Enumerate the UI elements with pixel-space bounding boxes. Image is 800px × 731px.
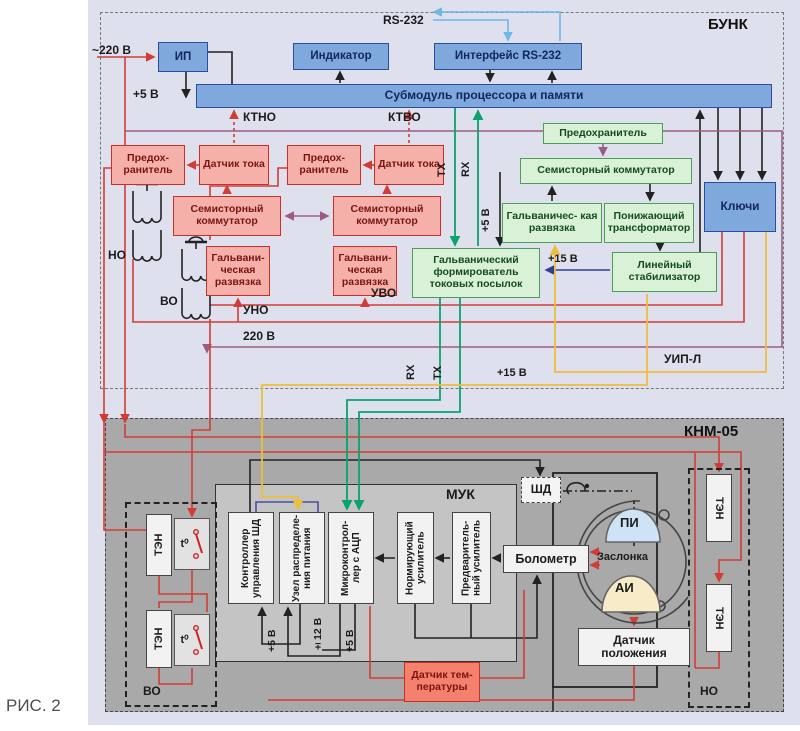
rs232-interface-label: Интерфейс RS-232 — [455, 50, 561, 63]
current-sensor-2-label: Датчик тока — [378, 159, 440, 171]
power-supply-box: ИП — [158, 42, 208, 72]
triac-switch-box-2: Семисторный коммутатор — [333, 196, 441, 236]
fuse-box-green: Предохранитель — [543, 123, 663, 144]
thermostat-1-label: t⁰ — [180, 538, 188, 550]
stepper-controller-box: Контроллер управления ШД — [228, 512, 274, 604]
rs232-interface-box: Интерфейс RS-232 — [434, 43, 582, 70]
heater-1-label: ТЭН — [153, 534, 165, 557]
plus5-b-label: +5 В — [344, 608, 356, 652]
temperature-sensor-box: Датчик тем- пературы — [404, 662, 480, 702]
ai-label: АИ — [615, 580, 634, 595]
rx-bottom-label: RX — [405, 346, 417, 380]
plus15-blue-label: +15 В — [548, 253, 578, 265]
thermal-switch-icon — [190, 526, 204, 562]
triac-switch-1-label: Семисторный коммутатор — [174, 204, 280, 228]
tx-top-label: TX — [436, 143, 448, 177]
vo-enclosure-label: ВО — [143, 684, 161, 698]
normalizing-amplifier-label: Нормирующий усилитель — [404, 513, 426, 603]
fuse-1-label: Предох- ранитель — [112, 153, 184, 177]
galvanic-isolation-box-1: Гальвани- ческая развязка — [206, 246, 270, 296]
thermostat-box-1: t⁰ — [174, 518, 210, 570]
vo-transformer-label: ВО — [160, 294, 178, 308]
plus15-yellow-label: +15 В — [497, 367, 527, 379]
figure-2-schematic: ИП Индикатор Интерфейс RS-232 Субмодуль … — [0, 0, 800, 731]
fuse-box-1: Предох- ранитель — [111, 145, 185, 185]
stepper-motor-box: ШД — [521, 477, 561, 503]
muk-title: МУК — [446, 486, 475, 502]
zaslonka-label: Заслонка — [597, 551, 648, 563]
ktvo-label: КТВО — [388, 110, 421, 124]
keys-box: Ключи — [704, 182, 776, 232]
plus5-top-label: +5 В — [133, 87, 159, 101]
fuse-green-label: Предохранитель — [559, 128, 647, 140]
current-sensor-box-1: Датчик тока — [199, 145, 269, 185]
figure-caption: РИС. 2 — [6, 696, 61, 716]
microcontroller-adc-box: Микроконтрол- лер с АЦП — [328, 512, 374, 604]
temperature-sensor-label: Датчик тем- пературы — [405, 670, 479, 694]
pi-label: ПИ — [620, 515, 639, 530]
heater-3-label: ТЭН — [713, 497, 725, 520]
knm-title: КНМ-05 — [684, 423, 738, 440]
triac-switch-box-1: Семисторный коммутатор — [173, 196, 281, 236]
indicator-label: Индикатор — [310, 50, 371, 63]
preamplifier-label: Предваритель- ный усилитель — [460, 513, 482, 603]
220v-label: 220 В — [243, 329, 275, 343]
step-down-transformer-box: Понижающий трансформатор — [604, 203, 694, 243]
current-sensor-1-label: Датчик тока — [203, 159, 265, 171]
rs232-label: RS-232 — [383, 13, 424, 27]
processor-submodule-label: Субмодуль процессора и памяти — [385, 89, 584, 102]
galvanic-isolation-box-green: Гальваничес- кая развязка — [502, 203, 602, 243]
bunk-title: БУНК — [708, 16, 748, 33]
rx-top-label: RX — [460, 143, 472, 177]
normalizing-amplifier-box: Нормирующий усилитель — [397, 512, 434, 604]
heater-box-4: ТЭН — [706, 584, 732, 652]
preamplifier-box: Предваритель- ный усилитель — [452, 512, 491, 604]
triac-switch-box-green: Семисторный коммутатор — [520, 158, 692, 184]
plus5-a-label: +5 В — [266, 608, 278, 652]
heater-box-1: ТЭН — [146, 514, 172, 576]
triac-switch-2-label: Семисторный коммутатор — [334, 204, 440, 228]
heater-4-label: ТЭН — [713, 607, 725, 630]
stepper-motor-label: ШД — [531, 483, 552, 496]
thermal-switch-icon — [190, 622, 204, 658]
position-sensor-box: Датчик положения — [578, 628, 690, 666]
thermostat-box-2: t⁰ — [174, 614, 210, 666]
stepper-controller-label: Контроллер управления ШД — [240, 513, 262, 603]
no-transformer-label: НО — [108, 248, 126, 262]
current-former-box: Гальванический формирователь токовых пос… — [412, 248, 540, 298]
fuse-box-2: Предох- ранитель — [287, 145, 361, 185]
current-sensor-box-2: Датчик тока — [374, 145, 444, 185]
bolometer-box: Болометр — [503, 545, 589, 573]
tx-bottom-label: TX — [432, 346, 444, 380]
heater-box-2: ТЭН — [146, 610, 172, 668]
position-sensor-label: Датчик положения — [579, 634, 689, 661]
step-down-transformer-label: Понижающий трансформатор — [605, 211, 693, 235]
bolometer-label: Болометр — [515, 552, 576, 566]
no-enclosure-label: НО — [700, 684, 718, 698]
uipl-label: УИП-Л — [664, 352, 701, 366]
ktno-label: КТНО — [243, 110, 276, 124]
triac-switch-green-label: Семисторный коммутатор — [537, 165, 674, 177]
indicator-box: Индикатор — [293, 43, 389, 70]
microcontroller-adc-label: Микроконтрол- лер с АЦП — [340, 513, 362, 603]
uvo-label: УВО — [371, 286, 396, 300]
processor-submodule-box: Субмодуль процессора и памяти — [196, 84, 772, 108]
power-in-label: ~220 В — [92, 43, 131, 57]
heater-box-3: ТЭН — [706, 474, 732, 542]
current-former-label: Гальванический формирователь токовых пос… — [413, 255, 539, 290]
uno-label: УНО — [243, 303, 268, 317]
power-supply-label: ИП — [175, 51, 192, 64]
power-distribution-label: Узел распределе- ния питания — [291, 513, 313, 603]
pm12-label: ±12 В — [312, 606, 324, 652]
power-distribution-box: Узел распределе- ния питания — [279, 512, 325, 604]
galvanic-isolation-1-label: Гальвани- ческая развязка — [207, 253, 269, 288]
galvanic-isolation-2-label: Гальвани- ческая развязка — [334, 253, 396, 288]
galvanic-isolation-green-label: Гальваничес- кая развязка — [503, 211, 601, 235]
linear-stabilizer-box: Линейный стабилизатор — [612, 252, 717, 292]
heater-2-label: ТЭН — [153, 628, 165, 651]
plus5-vertical-label: +5 В — [480, 190, 492, 232]
thermostat-2-label: t⁰ — [180, 634, 188, 646]
keys-label: Ключи — [720, 200, 759, 213]
linear-stabilizer-label: Линейный стабилизатор — [613, 260, 716, 284]
fuse-2-label: Предох- ранитель — [288, 153, 360, 177]
